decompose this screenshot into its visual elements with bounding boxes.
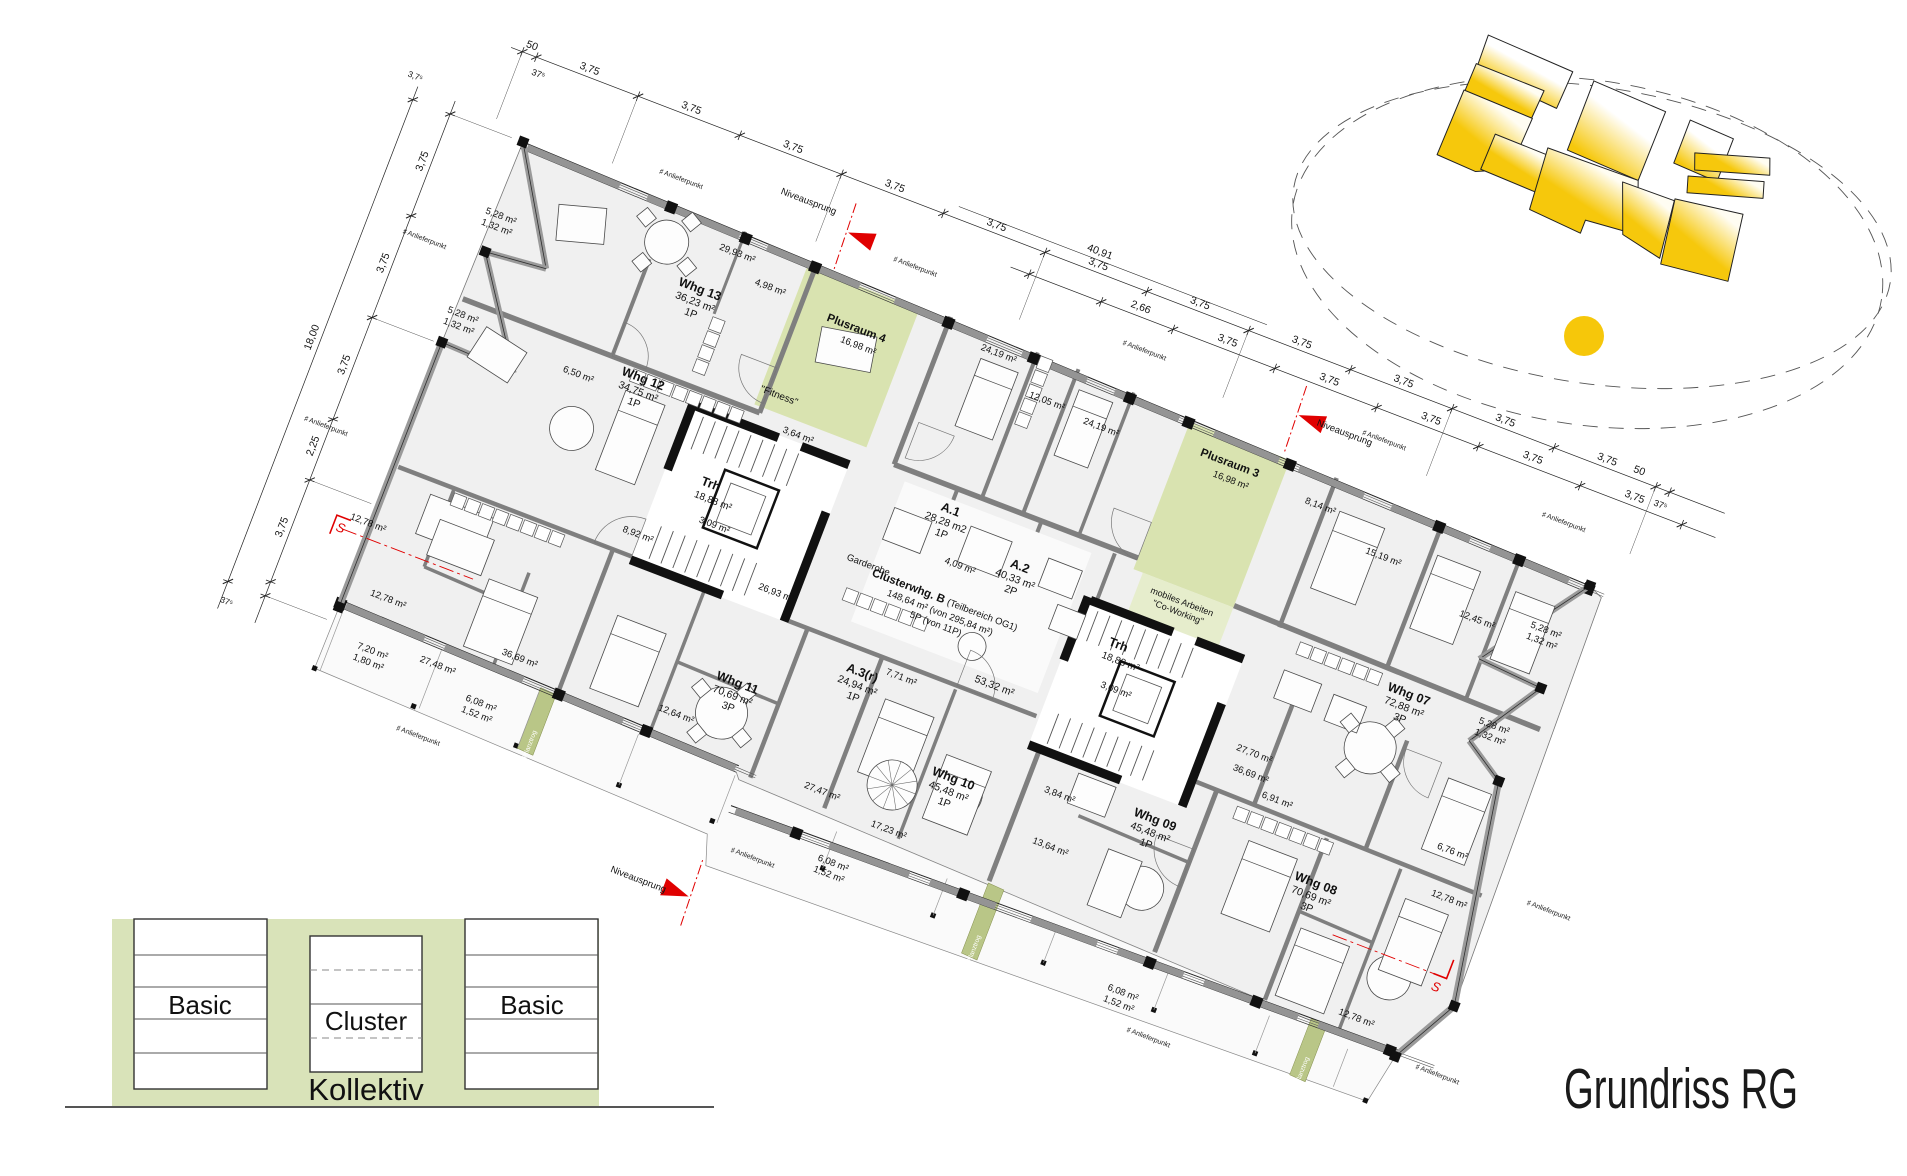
svg-text:Basic: Basic [168,990,232,1020]
svg-text:Cluster: Cluster [325,1006,408,1036]
svg-text:Basic: Basic [500,990,564,1020]
svg-text:Grundriss RG: Grundriss RG [1564,1057,1798,1121]
svg-text:Kollektiv: Kollektiv [308,1072,424,1107]
